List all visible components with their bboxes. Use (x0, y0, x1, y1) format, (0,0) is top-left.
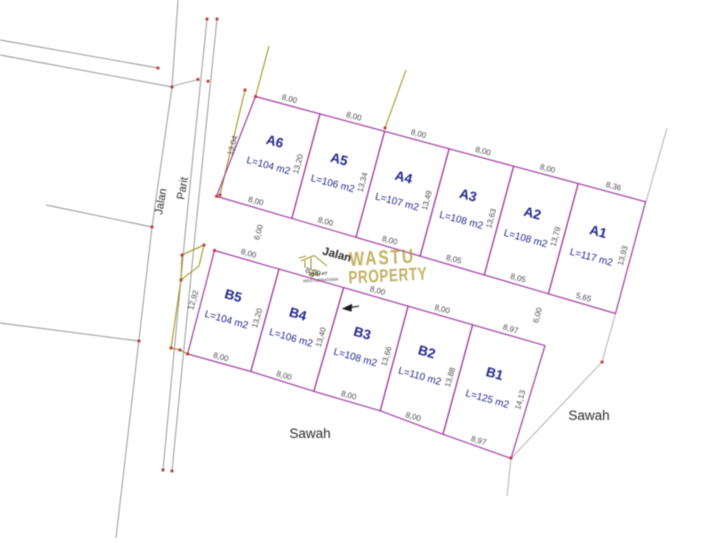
svg-text:Sawah: Sawah (568, 408, 609, 423)
svg-text:Sawah: Sawah (289, 426, 330, 441)
svg-text:PROPERTY: PROPERTY (348, 265, 428, 288)
